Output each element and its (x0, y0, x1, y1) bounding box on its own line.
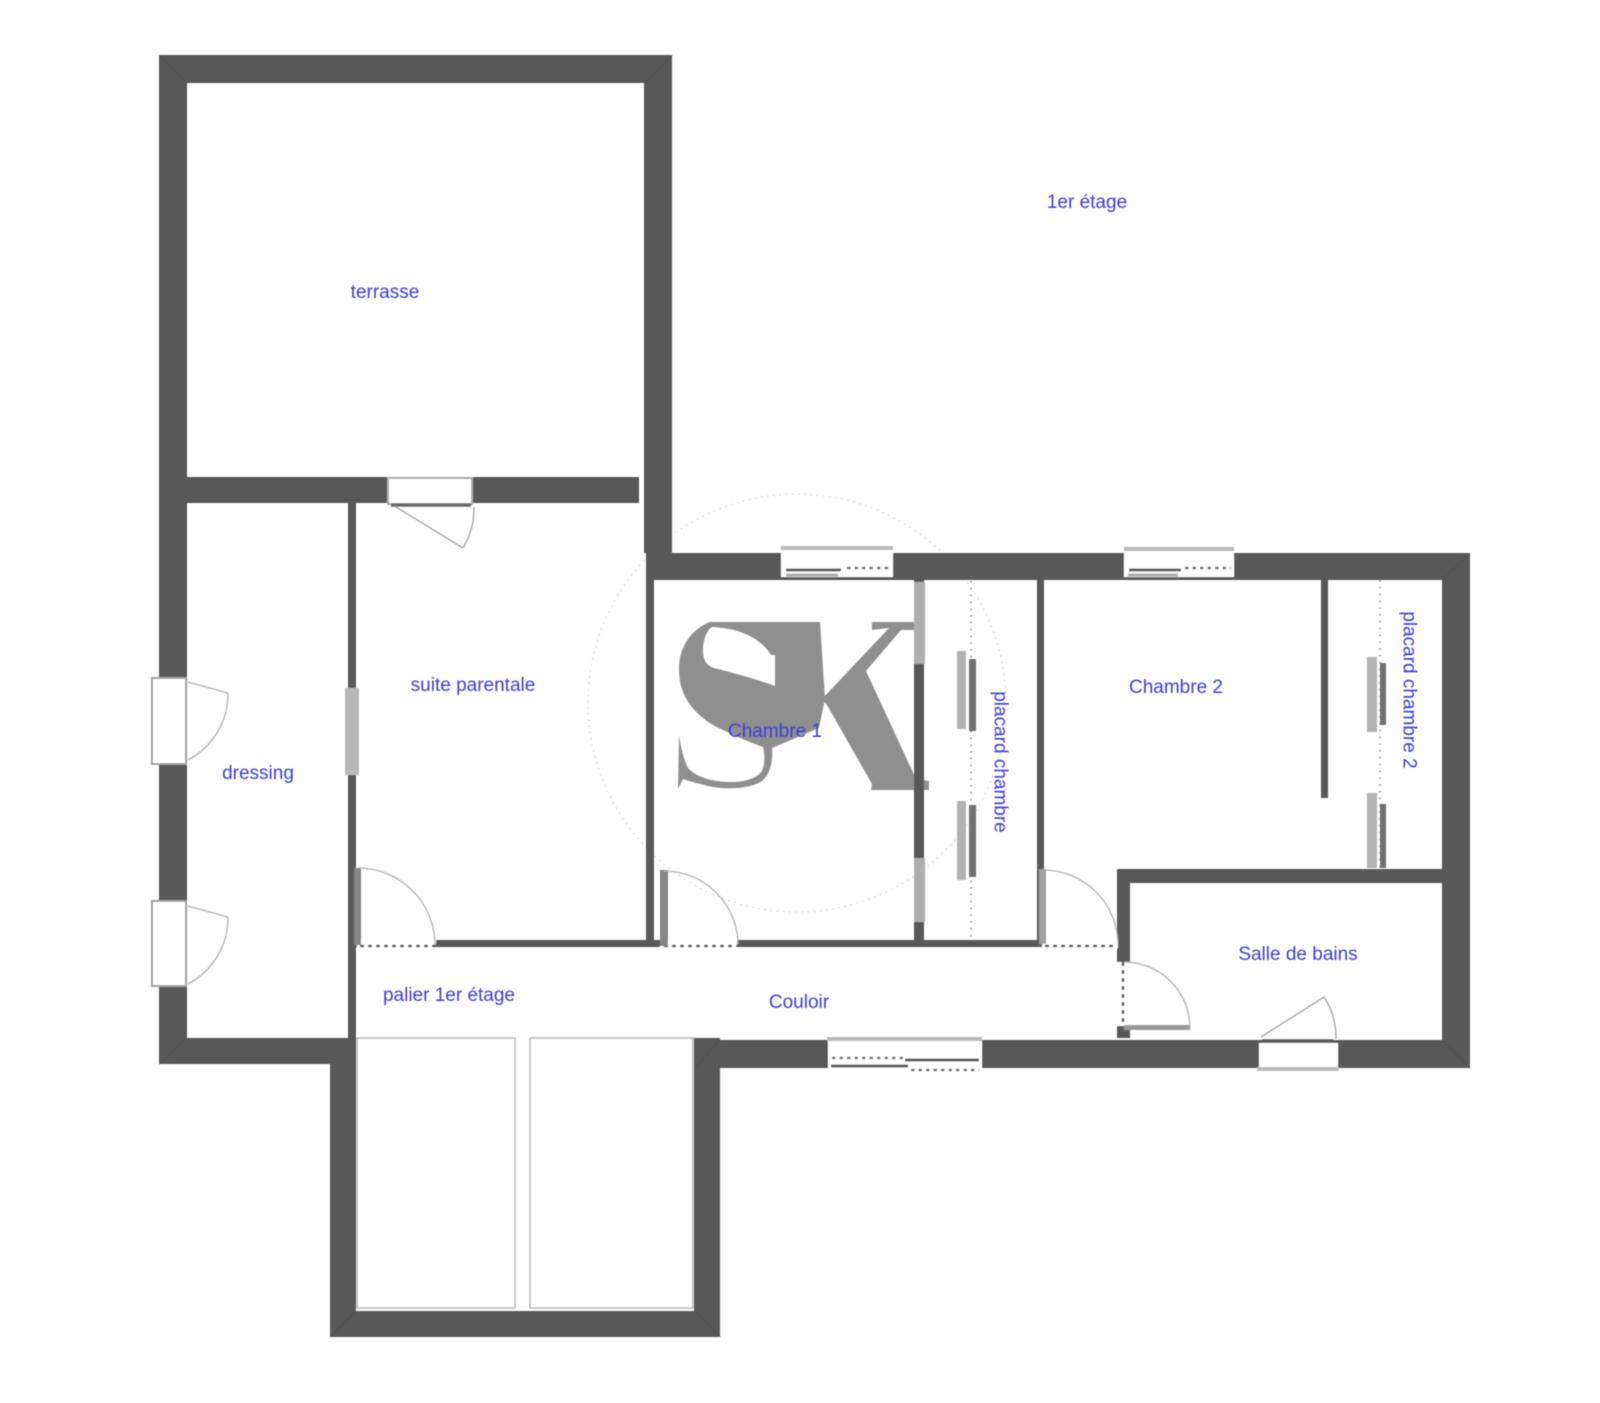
svg-text:Salle de bains: Salle de bains (1238, 944, 1357, 965)
svg-text:terrasse: terrasse (351, 282, 420, 303)
svg-text:1er étage: 1er étage (1047, 192, 1127, 213)
svg-text:dressing: dressing (222, 763, 294, 784)
svg-text:placard chambre: placard chambre (990, 691, 1011, 833)
svg-text:suite parentale: suite parentale (411, 675, 536, 696)
svg-text:palier 1er étage: palier 1er étage (383, 985, 515, 1006)
svg-text:placard chambre 2: placard chambre 2 (1399, 611, 1420, 768)
svg-text:Chambre 2: Chambre 2 (1129, 677, 1223, 698)
svg-text:Couloir: Couloir (769, 992, 830, 1013)
svg-text:Chambre 1: Chambre 1 (728, 721, 822, 742)
